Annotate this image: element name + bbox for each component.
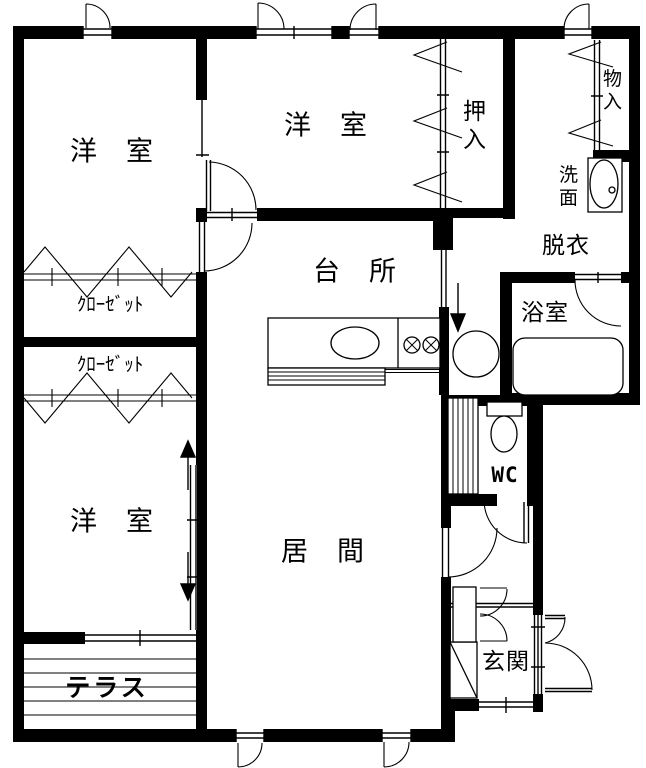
label-terrace: テラス bbox=[65, 673, 149, 704]
toilet bbox=[487, 402, 522, 452]
label-washstand: 洗 面 bbox=[559, 164, 579, 210]
floor-plan: 洋 室 洋 室 押 入 物 入 洗 面 脱衣 浴室 台 所 ｸﾛｰｾﾞｯﾄ ｸﾛ… bbox=[0, 0, 646, 768]
label-bedroom3: 洋 室 bbox=[70, 506, 154, 539]
wc-shelf-hatch bbox=[448, 398, 478, 494]
entrance-door-arc bbox=[545, 643, 592, 690]
closet-door-arc bbox=[480, 614, 507, 641]
closet-door-arc bbox=[480, 588, 507, 616]
label-kitchen: 台 所 bbox=[313, 256, 397, 289]
label-bedroom2: 洋 室 bbox=[284, 110, 368, 143]
stove-burner bbox=[423, 337, 439, 353]
bathtub bbox=[513, 338, 623, 395]
shoe-cabinet bbox=[450, 642, 477, 698]
window-arc bbox=[238, 743, 262, 767]
window-arc bbox=[384, 742, 409, 767]
door-arc bbox=[448, 528, 497, 577]
kitchen-counter bbox=[268, 318, 440, 385]
window-arc bbox=[258, 3, 284, 29]
label-bath: 浴室 bbox=[521, 298, 569, 326]
label-dressing: 脱衣 bbox=[542, 231, 590, 259]
label-living: 居 間 bbox=[281, 536, 365, 569]
label-bedroom1: 洋 室 bbox=[70, 136, 154, 169]
kitchen-sink bbox=[331, 327, 379, 359]
door-arc bbox=[484, 500, 527, 543]
label-closet2: ｸﾛｰｾﾞｯﾄ bbox=[77, 353, 144, 376]
hall-closet bbox=[453, 587, 476, 642]
window-arc bbox=[86, 4, 110, 28]
label-closet1: ｸﾛｰｾﾞｯﾄ bbox=[77, 293, 144, 316]
entrance-door-arc bbox=[545, 617, 565, 643]
label-storage: 物 入 bbox=[603, 68, 623, 114]
label-wc: WC bbox=[491, 463, 518, 489]
arrow-down bbox=[451, 283, 465, 331]
door-arc bbox=[575, 280, 621, 326]
stove-burner bbox=[404, 337, 420, 353]
label-entrance: 玄関 bbox=[482, 647, 530, 675]
wash-basin bbox=[588, 158, 622, 212]
door-arc bbox=[209, 162, 256, 210]
window-arc bbox=[350, 4, 376, 30]
window-arc bbox=[564, 4, 589, 29]
label-oshiire: 押 入 bbox=[463, 97, 487, 153]
door-arc bbox=[204, 223, 252, 271]
washing-machine bbox=[453, 331, 499, 377]
